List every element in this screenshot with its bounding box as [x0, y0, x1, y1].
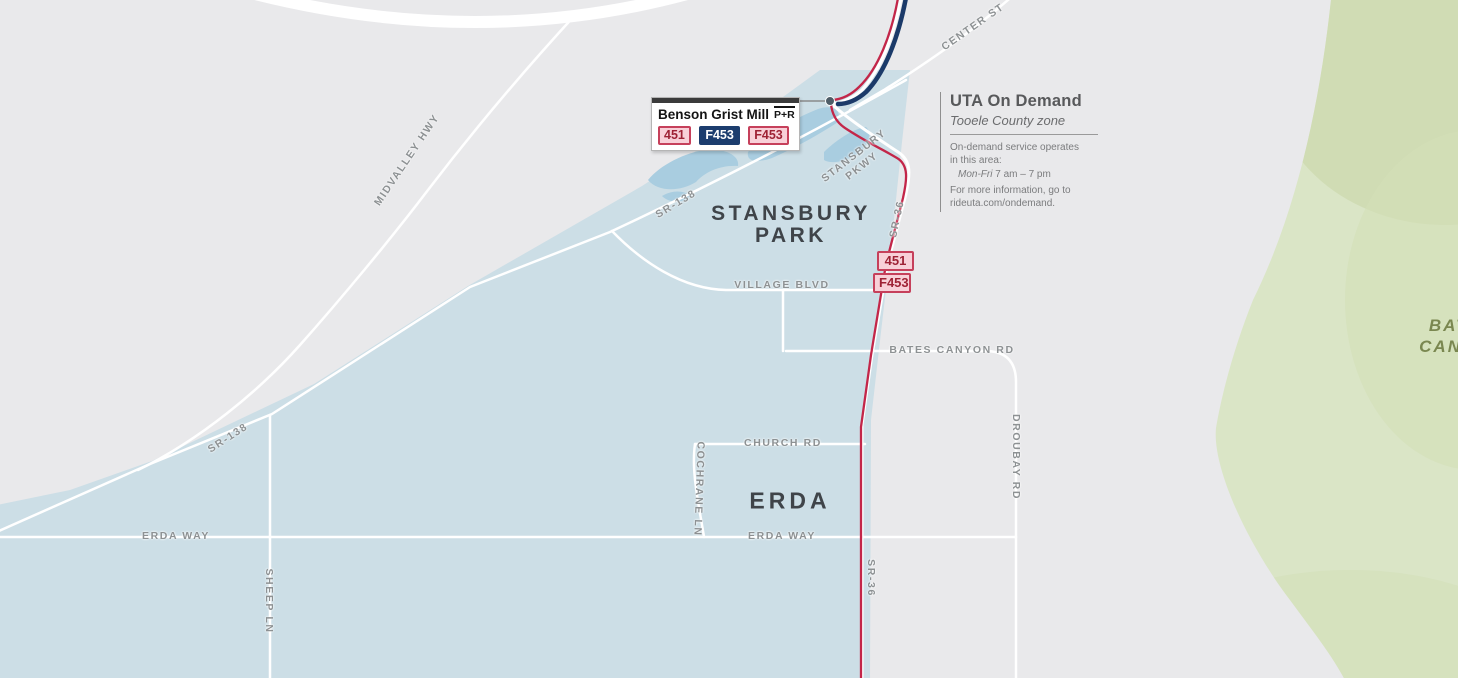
bus-stop-dot	[826, 97, 835, 106]
bates-canyon-line2: CANYON	[1402, 336, 1458, 357]
road-label-bates-canyon-rd: BATES CANYON RD	[889, 344, 1014, 356]
place-label-stansbury-park: STANSBURY PARK	[711, 203, 871, 247]
info-divider	[950, 134, 1098, 135]
callout-badge-f453-red: F453	[748, 126, 789, 145]
bates-canyon-line1: BATES	[1402, 315, 1458, 336]
road-label-village-blvd: VILLAGE BLVD	[734, 279, 829, 291]
info-line4: rideuta.com/ondemand.	[950, 197, 1108, 210]
road-oval-track	[225, 0, 715, 22]
callout-badge-f453-navy: F453	[699, 126, 740, 145]
stop-name: Benson Grist Mill	[658, 107, 769, 122]
road-label-droubay-rd: DROUBAY RD	[1010, 414, 1022, 500]
stansbury-park-line2: PARK	[711, 225, 871, 247]
on-demand-info-box: UTA On Demand Tooele County zone On-dema…	[940, 92, 1108, 212]
info-title: UTA On Demand	[950, 92, 1108, 111]
place-label-erda: ERDA	[749, 488, 830, 515]
schedule-hours: 7 am – 7 pm	[995, 169, 1051, 180]
info-line3: For more information, go to	[950, 184, 1108, 197]
road-label-sr-36-lower: SR-36	[865, 559, 877, 597]
road-label-sheep-ln: SHEEP LN	[263, 568, 275, 633]
callout-badge-451: 451	[658, 126, 691, 145]
road-label-erda-way-right: ERDA WAY	[748, 530, 816, 542]
info-line1: On-demand service operates	[950, 141, 1108, 154]
transit-map: CENTER ST MIDVALLEY HWY SR-138 SR-138 ST…	[0, 0, 1458, 678]
info-schedule: Mon-Fri 7 am – 7 pm	[950, 168, 1108, 181]
callout-badges: 451 F453 F453	[652, 123, 799, 150]
schedule-days: Mon-Fri	[958, 169, 992, 180]
on-demand-zone	[0, 70, 910, 678]
stop-callout-benson-grist-mill: Benson Grist MillP+R 451 F453 F453	[651, 97, 800, 151]
map-badge-451: 451	[877, 251, 914, 271]
info-line2: in this area:	[950, 154, 1108, 167]
place-label-bates-canyon: BATES CANYON	[1402, 315, 1458, 358]
road-label-church-rd: CHURCH RD	[744, 437, 822, 449]
info-subtitle: Tooele County zone	[950, 113, 1108, 128]
park-and-ride-icon: P+R	[774, 106, 795, 121]
map-badge-f453: F453	[873, 273, 911, 293]
stansbury-park-line1: STANSBURY	[711, 203, 871, 225]
green-shade-bottom	[1160, 570, 1458, 678]
road-label-erda-way-left: ERDA WAY	[142, 530, 210, 542]
